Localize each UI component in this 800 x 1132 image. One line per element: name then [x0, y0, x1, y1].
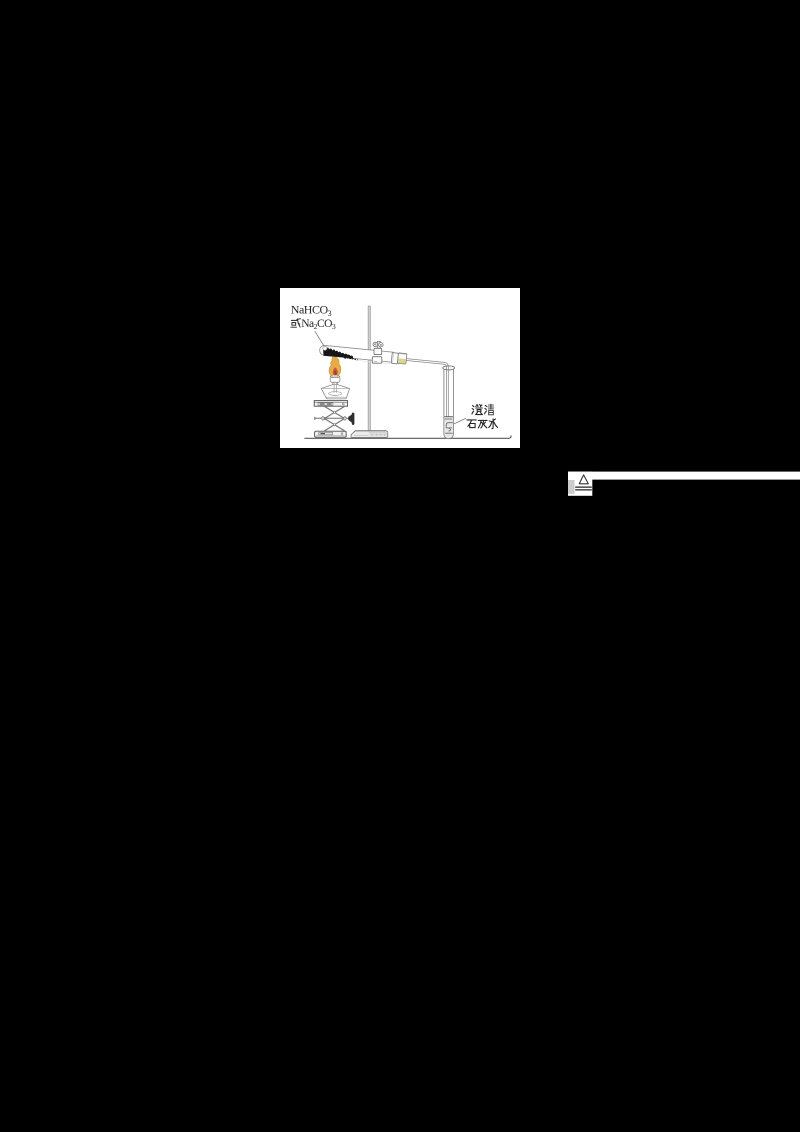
svg-text:NaHCO3: NaHCO3: [291, 303, 332, 318]
svg-text:Na2CO3: Na2CO3: [301, 318, 336, 331]
